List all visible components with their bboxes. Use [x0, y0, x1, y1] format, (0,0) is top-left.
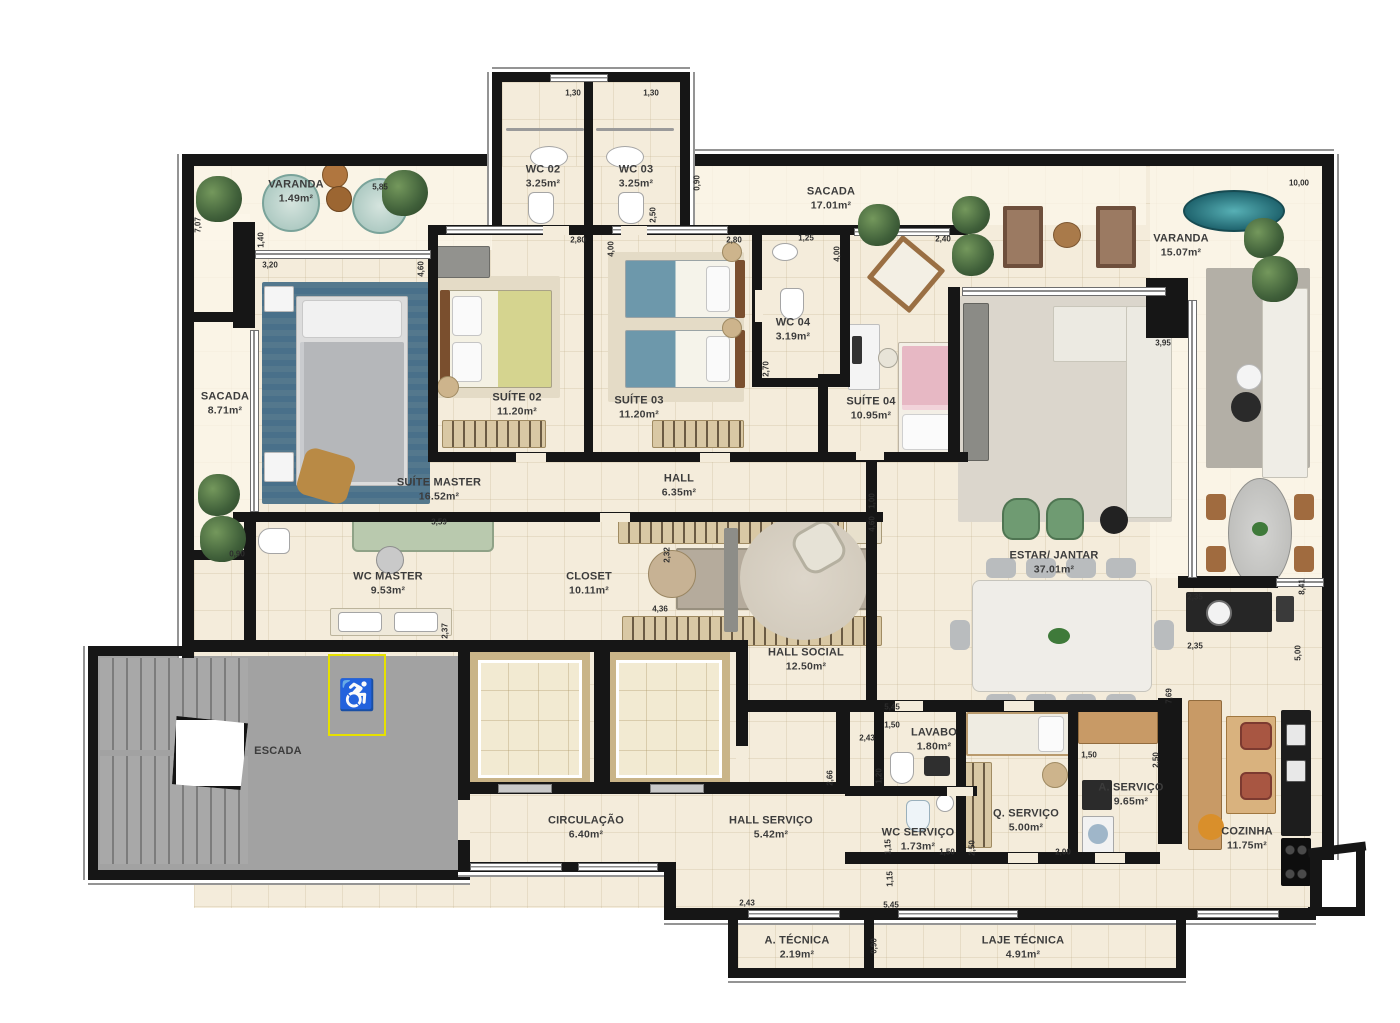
room-label-a-tecnica: A. TÉCNICA2.19m² [765, 935, 830, 962]
blanket-suite04-pink [902, 346, 954, 410]
room-area: 1.49m² [268, 192, 324, 205]
room-area: 11.20m² [492, 405, 541, 418]
door-opening [600, 513, 630, 522]
dimension-label: 5,45 [883, 901, 899, 910]
dimension-label: 2,50 [649, 207, 658, 223]
headboard [735, 330, 745, 388]
door-opening [458, 800, 470, 840]
dimension-label: 4,00 [833, 246, 842, 262]
wall [192, 640, 748, 652]
pillow [452, 342, 482, 382]
dimension-label: 1,15 [886, 871, 895, 887]
dimension-label: 1,50 [1081, 751, 1097, 760]
kitchen-chair-red [1240, 772, 1272, 800]
coffee-table-black [1100, 506, 1128, 534]
room-area: 5.00m² [993, 821, 1059, 834]
chair-wood [1206, 494, 1226, 520]
window [578, 863, 658, 871]
console-hall-social [724, 528, 738, 632]
pillow [706, 336, 730, 382]
dimension-label: 5,85 [372, 183, 388, 192]
room-label-suite-master: SUÍTE MASTER16.52m² [397, 477, 481, 504]
side-table-wood [326, 186, 352, 212]
window [1188, 300, 1197, 578]
dimension-label: 0,90 [693, 175, 702, 191]
door-opening [755, 290, 763, 322]
dimension-label: 2,32 [663, 547, 672, 563]
dimension-label: 4,00 [607, 241, 616, 257]
accessible-waiting-area: ♿ [328, 654, 386, 736]
wall [1322, 154, 1334, 860]
wall [737, 700, 1160, 712]
dimension-label: 3,59 [431, 518, 447, 527]
sideboard-estar [963, 303, 989, 461]
room-name: WC 02 [526, 164, 561, 176]
wheelchair-icon: ♿ [338, 678, 375, 713]
room-name: HALL SERVIÇO [729, 815, 813, 827]
wall [244, 512, 256, 648]
room-label-sacada-top: SACADA17.01m² [807, 186, 855, 213]
door-opening [736, 746, 748, 782]
dimension-label: 1,50 [884, 721, 900, 730]
kitchen-sink-round [1206, 600, 1232, 626]
dimension-label: 1,30 [565, 89, 581, 98]
chair-wood [1206, 546, 1226, 572]
room-label-hall-servico: HALL SERVIÇO5.42m² [729, 815, 813, 842]
room-name: SUÍTE 03 [614, 395, 663, 407]
room-label-closet: CLOSET10.11m² [566, 571, 612, 598]
dimension-label: 0,90 [229, 550, 245, 559]
dimension-label: 7,07 [194, 217, 203, 233]
balcony-floor-sacada-top [690, 166, 1146, 225]
shower-glass [506, 128, 584, 131]
room-name: CIRCULAÇÃO [548, 815, 624, 827]
room-area: 15.07m² [1153, 246, 1209, 259]
room-name: WC SERVIÇO [882, 827, 955, 839]
room-name: SUÍTE MASTER [397, 477, 481, 489]
sink-wc-servico [936, 794, 954, 812]
shower-glass [596, 128, 674, 131]
room-name: ESCADA [254, 745, 302, 757]
dimension-label: 3,95 [1155, 339, 1171, 348]
room-name: WC 03 [619, 164, 654, 176]
wall [680, 72, 690, 234]
wall [1068, 705, 1078, 863]
counter-a-servico [1078, 708, 1158, 744]
wall [1356, 848, 1365, 916]
rug-round-small [1042, 762, 1068, 788]
dimension-label: 1,15 [884, 839, 893, 855]
wall [584, 72, 593, 234]
dimension-label: 2,66 [826, 770, 835, 786]
room-area: 37.01m² [1010, 563, 1099, 576]
wardrobe-suite02 [442, 420, 546, 448]
wardrobe-suite03 [652, 420, 744, 448]
room-name: Q. SERVIÇO [993, 808, 1059, 820]
sink-lavabo [924, 756, 950, 776]
wall [233, 512, 883, 522]
door-opening [516, 453, 546, 462]
door-opening [947, 787, 973, 796]
door-opening [1095, 853, 1125, 863]
sliding-door [962, 287, 1166, 296]
dimension-label: 5,00 [1294, 645, 1303, 661]
nightstand [264, 286, 294, 312]
room-name: HALL [664, 473, 694, 485]
room-label-wc-master: WC MASTER9.53m² [353, 571, 423, 598]
room-area: 10.95m² [846, 409, 895, 422]
room-area: 9.53m² [353, 584, 423, 597]
window [550, 74, 608, 82]
dimension-label: 7,69 [1165, 688, 1174, 704]
wall [182, 154, 500, 166]
nightstand [264, 452, 294, 482]
dimension-label: 2,00 [1055, 848, 1071, 857]
elevator-1 [470, 652, 590, 786]
window [898, 910, 1018, 918]
toilet-wc04 [780, 288, 804, 320]
side-table-white [1236, 364, 1262, 390]
room-label-suite02: SUÍTE 0211.20m² [492, 392, 541, 419]
pillows-suite-master [302, 300, 402, 338]
dimension-label: 2,50 [968, 840, 977, 856]
toilet-wc03 [618, 192, 644, 224]
closet-pouf [648, 550, 696, 598]
pillow [452, 296, 482, 336]
wall [192, 312, 240, 322]
window [255, 250, 431, 259]
dimension-label: 1,00 [868, 493, 877, 509]
room-label-estar-jantar: ESTAR/ JANTAR37.01m² [1010, 550, 1099, 577]
room-label-hall: HALL6.35m² [662, 473, 696, 500]
dimension-label: 1,30 [643, 89, 659, 98]
room-name: LAVABO [911, 727, 957, 739]
dimension-label: 2,80 [726, 236, 742, 245]
room-label-wc04: WC 043.19m² [776, 317, 811, 344]
room-area: 5.42m² [729, 828, 813, 841]
wall [818, 378, 828, 458]
dimension-label: 2,50 [1152, 752, 1161, 768]
room-name: A. SERVIÇO [1098, 782, 1163, 794]
room-area: 1.80m² [911, 740, 957, 753]
sofa-sacada-1 [1003, 206, 1043, 268]
cooktop [1281, 838, 1311, 886]
dining-chair [1106, 558, 1136, 578]
room-label-q-servico: Q. SERVIÇO5.00m² [993, 808, 1059, 835]
room-name: HALL SOCIAL [768, 647, 844, 659]
wall [594, 646, 610, 786]
monitor-suite04 [852, 336, 862, 364]
room-name: WC 04 [776, 317, 811, 329]
door-opening [543, 226, 569, 235]
dimension-label: 1,20 [875, 768, 884, 784]
room-area: 11.20m² [614, 408, 663, 421]
wardrobe-q-servico [962, 762, 992, 848]
pillow [706, 266, 730, 312]
dimension-label: 2,35 [1187, 642, 1203, 651]
elevator-2 [608, 652, 730, 786]
room-area: 11.75m² [1221, 839, 1273, 852]
room-label-laje-tecnica: LAJE TÉCNICA4.91m² [982, 935, 1064, 962]
headboard [735, 260, 745, 318]
door-opening [1008, 853, 1038, 863]
basin [338, 612, 382, 632]
wall [948, 287, 960, 462]
pouf [722, 242, 742, 262]
room-area: 6.40m² [548, 828, 624, 841]
room-label-suite04: SUÍTE 0410.95m² [846, 396, 895, 423]
room-area: 3.25m² [619, 177, 654, 190]
headboard-suite02 [440, 290, 450, 388]
dimension-label: 2,43 [739, 899, 755, 908]
room-label-lavabo: LAVABO1.80m² [911, 727, 957, 754]
room-label-wc02: WC 023.25m² [526, 164, 561, 191]
room-name: CLOSET [566, 571, 612, 583]
dimension-label: 8,41 [1298, 579, 1307, 595]
dresser-suite02 [436, 246, 490, 278]
dimension-label: 2,70 [762, 361, 771, 377]
room-label-hall-social: HALL SOCIAL12.50m² [768, 647, 844, 674]
dimension-label: 4,60 [417, 261, 426, 277]
door-opening [856, 451, 884, 460]
dimension-label: 2,43 [859, 734, 875, 743]
room-area: 12.50m² [768, 660, 844, 673]
floor-plan: ♿ [0, 0, 1400, 1023]
basin [394, 612, 438, 632]
room-name: SUÍTE 04 [846, 396, 895, 408]
sofa-sacada-2 [1096, 206, 1136, 268]
dimension-label: 4,36 [652, 605, 668, 614]
wall [1310, 850, 1322, 916]
room-name: VARANDA [1153, 233, 1209, 245]
wall [1176, 918, 1186, 976]
room-label-circulacao: CIRCULAÇÃO6.40m² [548, 815, 624, 842]
room-area: 17.01m² [807, 199, 855, 212]
pouf [722, 318, 742, 338]
room-label-escada: ESCADA [254, 745, 302, 759]
wall [680, 154, 1334, 166]
wall [88, 646, 192, 656]
window [470, 863, 562, 871]
coffee-machine [1276, 596, 1294, 622]
elevator-door [650, 784, 704, 793]
window [1197, 910, 1279, 918]
toilet-wc02 [528, 192, 554, 224]
wall [428, 452, 968, 462]
toilet-wc-master [258, 528, 290, 554]
dining-chair [1154, 620, 1174, 650]
dining-chair [950, 620, 970, 650]
dimension-label: 5,45 [884, 703, 900, 712]
wall [88, 870, 470, 880]
armchair-green [1046, 498, 1084, 540]
wall [836, 712, 850, 794]
oven [1286, 760, 1306, 782]
door-opening [700, 453, 730, 462]
wall [182, 154, 194, 658]
dimension-label: 1,25 [798, 234, 814, 243]
dimension-label: 4,60 [868, 516, 877, 532]
room-area: 3.19m² [776, 330, 811, 343]
wall [584, 233, 593, 457]
door-opening [621, 226, 647, 235]
pillow-suite04 [902, 414, 954, 450]
sink-wc04 [772, 243, 798, 261]
room-label-a-servico: A. SERVIÇO9.65m² [1098, 782, 1163, 809]
fruit-bowl [1198, 814, 1224, 840]
room-label-varanda-tl: VARANDA1.49m² [268, 179, 324, 206]
side-table-black [1231, 392, 1261, 422]
room-name: WC MASTER [353, 571, 423, 583]
room-area: 8.71m² [201, 404, 249, 417]
room-label-varanda-right: VARANDA15.07m² [1153, 233, 1209, 260]
wall [728, 968, 1186, 978]
sofa-varanda [1262, 288, 1308, 478]
wall [840, 225, 850, 380]
room-name: SACADA [201, 391, 249, 403]
centerpiece [1048, 628, 1070, 644]
pouf [437, 376, 459, 398]
wall [428, 233, 438, 457]
stair-void [172, 716, 248, 790]
window [748, 910, 840, 918]
room-area: 4.91m² [982, 948, 1064, 961]
dimension-label: 2,40 [935, 235, 951, 244]
room-name: SUÍTE 02 [492, 392, 541, 404]
room-area: 3.25m² [526, 177, 561, 190]
door-opening [1004, 701, 1034, 711]
room-area: 16.52m² [397, 490, 481, 503]
room-name: LAJE TÉCNICA [982, 935, 1064, 947]
chair-wood [1294, 546, 1314, 572]
room-name: SACADA [807, 186, 855, 198]
wall [492, 72, 502, 234]
oven [1286, 724, 1306, 746]
dimension-label: 1,40 [257, 232, 266, 248]
elevator-door [498, 784, 552, 793]
dimension-label: 2,35 [1187, 593, 1203, 602]
pillow [1038, 716, 1064, 752]
wall [1158, 698, 1182, 844]
washer-drum [1088, 824, 1108, 844]
dimension-label: 3,20 [262, 261, 278, 270]
dimension-label: 10,00 [1289, 179, 1309, 188]
wall [88, 646, 98, 880]
room-label-suite03: SUÍTE 0311.20m² [614, 395, 663, 422]
kitchen-chair-red [1240, 722, 1272, 750]
dimension-label: 2,80 [570, 236, 586, 245]
window [250, 330, 259, 512]
round-table-wood [1053, 222, 1081, 248]
dimension-label: 0,90 [870, 938, 879, 954]
room-label-cozinha: COZINHA11.75m² [1221, 826, 1273, 853]
dimension-label: 2,37 [441, 623, 450, 639]
toilet-lavabo [890, 752, 914, 784]
room-name: COZINHA [1221, 826, 1273, 838]
room-area: 10.11m² [566, 584, 612, 597]
armchair-green [1002, 498, 1040, 540]
room-name: A. TÉCNICA [765, 935, 830, 947]
room-name: ESTAR/ JANTAR [1010, 550, 1099, 562]
chair-wood [1294, 494, 1314, 520]
room-area: 6.35m² [662, 486, 696, 499]
room-label-sacada-left: SACADA8.71m² [201, 391, 249, 418]
room-area: 9.65m² [1098, 795, 1163, 808]
room-label-wc03: WC 033.25m² [619, 164, 654, 191]
room-name: VARANDA [268, 179, 324, 191]
dimension-label: 1,50 [939, 848, 955, 857]
centerpiece-plant [1252, 522, 1268, 536]
room-area: 2.19m² [765, 948, 830, 961]
wall [956, 705, 966, 863]
desk-chair [878, 348, 898, 368]
